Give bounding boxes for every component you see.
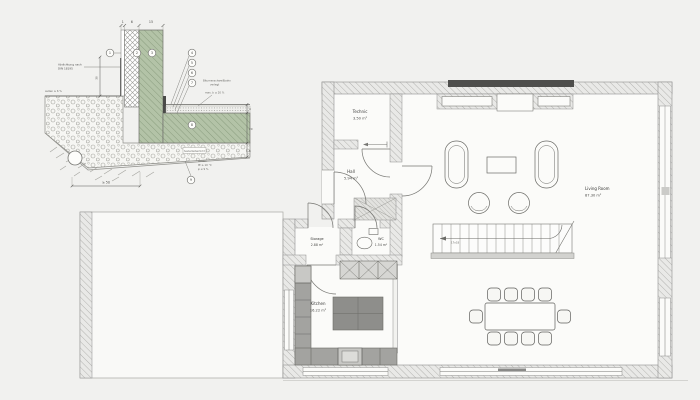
callout-number: 7: [191, 81, 193, 85]
dining-chair: [539, 332, 552, 345]
window-mullion: [662, 187, 670, 195]
wall-section-detail: Sauberkeitsschicht 1 6 15 30 4 20 6: [45, 20, 253, 187]
room-name: WC: [378, 237, 384, 241]
room-area: 2.88 m²: [311, 243, 324, 247]
layer-tag: Sauberkeitsschicht: [183, 148, 206, 154]
kitchen-counter-bottom: [295, 348, 397, 365]
wall-storage-wc: [340, 228, 352, 255]
dim-extensions: [121, 26, 163, 31]
dim-wall-height: 30: [95, 56, 102, 98]
room-area: 5.94 m²: [344, 177, 359, 181]
dim-insulation-label: 6: [131, 20, 133, 24]
terrace-west-wall: [80, 212, 92, 378]
sideboard-inset: [442, 97, 492, 107]
toilet-cistern: [369, 229, 378, 235]
wall-hall-storage-b: [338, 219, 355, 228]
north-window-band: [448, 80, 574, 87]
room-area: 1.54 m²: [375, 243, 388, 247]
terrace-slab: [80, 212, 283, 378]
membrane-label-2: verlegt: [210, 83, 219, 87]
callout-number: 6: [191, 71, 193, 75]
sink-basin: [342, 351, 358, 362]
exterior-plaster-layer: [121, 30, 125, 96]
dim-plaster-label: 1: [122, 20, 124, 24]
dim-base-label: ≥ 50: [102, 181, 110, 185]
stair-note: 17x18: [451, 241, 459, 245]
callout-leader: [185, 161, 191, 176]
callout-number: 9: [190, 178, 192, 182]
counter-appliance: [295, 266, 311, 283]
window-east-2: [660, 298, 671, 356]
dining-chair: [505, 288, 518, 301]
sofa: [445, 141, 468, 188]
dim-slab-label: 20: [249, 127, 253, 131]
seal-label-2: DIN 18195: [58, 67, 73, 71]
chair-outline: [469, 193, 490, 214]
tv-sideboard: [437, 94, 573, 111]
callout-leader: [175, 76, 189, 110]
callout-leader: [171, 56, 189, 104]
insulation-layer: [125, 30, 140, 107]
dim-wall-label: 15: [149, 20, 153, 24]
fireplace-inset: [497, 94, 533, 111]
membrane-annotation: Bitumenschweißbahn verlegt max. b ≤ 20 %: [198, 79, 231, 107]
wall-hall-storage-c: [380, 219, 390, 228]
window-west-kitchen: [285, 290, 294, 350]
room-name: Storage: [310, 237, 323, 241]
callout-number: 5: [191, 61, 193, 65]
architectural-drawing: Sauberkeitsschicht 1 6 15 30 4 20 6: [0, 0, 700, 400]
dim-height-label: 30: [95, 76, 99, 80]
concrete-wall: [139, 30, 163, 143]
window-south-2: [440, 368, 622, 376]
perimeter-seal-strip: [163, 96, 166, 113]
callout-number: 2: [136, 51, 138, 55]
callout-leader: [173, 66, 189, 107]
kitchen-fittings: [295, 261, 397, 365]
room-name: Hall: [347, 169, 355, 174]
kitchen-counter-left: [295, 266, 311, 355]
dining-chair: [522, 288, 535, 301]
sliding-door-leaf: [498, 369, 526, 372]
callout-number: 1: [109, 51, 111, 55]
layer-tag-text: Sauberkeitsschicht: [184, 150, 205, 153]
window-south-1: [303, 368, 388, 376]
grade-label: außen ≥ 6 %: [45, 89, 62, 93]
membrane-label-1: Bitumenschweißbahn: [203, 79, 231, 83]
sideboard-inset: [538, 97, 570, 107]
dining-chair: [522, 332, 535, 345]
lounge-chair: [509, 193, 530, 214]
sofa: [535, 141, 558, 188]
floor-slab: [163, 113, 250, 143]
drainage-pipe: [68, 151, 82, 165]
door-opening: [322, 170, 334, 204]
entrance-opening: [322, 170, 334, 204]
drawing-canvas: Sauberkeitsschicht 1 6 15 30 4 20 6: [0, 0, 700, 400]
room-name: Living Room: [585, 186, 610, 191]
wall-kitchen-north-a: [283, 255, 306, 265]
dining-chair: [488, 288, 501, 301]
soil-note-3: φ ≤ 9 %: [198, 167, 209, 171]
dim-layer-top-label: 4: [249, 107, 251, 111]
lounge-chair: [469, 193, 490, 214]
room-name: Kitchen: [310, 301, 325, 306]
wardrobe-cabinets: [340, 261, 397, 279]
room-area: 3.50 m²: [353, 117, 368, 121]
sofa-cushion: [449, 146, 465, 184]
wall-technic-living-upper: [390, 94, 402, 162]
dim-base: ≥ 50: [71, 172, 142, 187]
terrace: [80, 212, 283, 378]
callout-number: 3: [151, 51, 153, 55]
stair-balustrade: [431, 253, 574, 259]
dining-table: [485, 303, 555, 330]
shaft: [354, 198, 396, 220]
callout-number: 4: [191, 51, 193, 55]
dining-chair: [505, 332, 518, 345]
dim-ticks: [120, 24, 165, 27]
soil-note-1: außen:: [198, 159, 207, 163]
dining-chair: [558, 310, 571, 323]
soil-note-2: tE ≥ 10 °C: [198, 163, 212, 167]
dining-chair: [539, 288, 552, 301]
room-area: 16.22 m²: [310, 309, 327, 313]
membrane-label-3: max. b ≤ 20 %: [205, 91, 225, 95]
sofa-cushion: [539, 146, 555, 184]
seal-annotation: Abdichtung nach DIN 18195: [58, 63, 121, 71]
chair-outline: [509, 193, 530, 214]
kitchen-island: [333, 297, 383, 330]
window-east-1: [660, 106, 671, 258]
coffee-table: [487, 157, 516, 173]
toilet-bowl: [357, 237, 372, 249]
dining-chair: [470, 310, 483, 323]
room-name: Technic: [352, 109, 368, 114]
dining-chair: [488, 332, 501, 345]
dim-bed-label: 6: [249, 149, 251, 153]
staircase: 17x18: [431, 221, 574, 259]
wall-hall-storage-a: [295, 219, 308, 228]
room-area: 87.30 m²: [585, 194, 602, 198]
wall-technic-south: [334, 140, 358, 149]
dim-top: 1 6 15: [118, 20, 166, 30]
callout-number: 8: [191, 123, 193, 127]
